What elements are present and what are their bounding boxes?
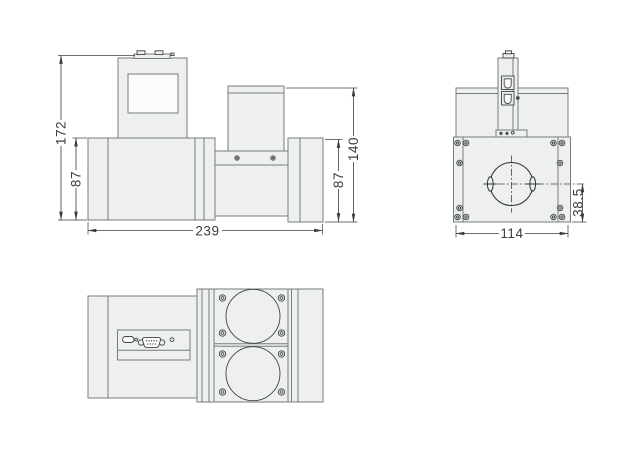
- screw-icon: [463, 140, 469, 146]
- dim-text-total-width: 239: [195, 224, 219, 239]
- screw-icon: [551, 140, 557, 146]
- screw-icon: [463, 214, 469, 220]
- dim-text-right-total-height: 140: [346, 137, 361, 161]
- dim-text-total-height: 172: [54, 121, 69, 145]
- screw-icon: [219, 351, 225, 357]
- front-lower-body: [215, 165, 288, 216]
- screw-icon: [551, 214, 557, 220]
- front-display-window: [128, 74, 178, 113]
- front-right-column-cap: [228, 86, 284, 93]
- oval-slot: [123, 337, 135, 343]
- screw-icon: [457, 160, 463, 166]
- screw-icon: [559, 140, 565, 146]
- dim-text-side-width: 114: [500, 226, 523, 241]
- screw-icon: [278, 330, 284, 336]
- side-view: [454, 51, 587, 222]
- dim-text-center-to-bottom: 38.5: [571, 188, 586, 217]
- screw-icon: [557, 160, 563, 166]
- port-plug-1: [504, 79, 511, 88]
- front-top-connector-2: [155, 51, 163, 55]
- screw-icon: [278, 295, 284, 301]
- dim-text-right-body-height: 87: [331, 172, 346, 188]
- dsub-connector-shell: [142, 338, 160, 348]
- screw-icon: [559, 214, 565, 220]
- front-top-connector-small: [171, 53, 174, 56]
- front-top-connector-1: [137, 51, 145, 55]
- three-view-drawing: 172 87 239 87 140 114 38.5: [0, 0, 617, 455]
- screw-icon: [278, 351, 284, 357]
- screw-icon: [219, 295, 225, 301]
- screw-icon: [271, 156, 275, 160]
- front-view: [88, 51, 323, 222]
- port-plug-2: [504, 94, 511, 103]
- side-tab-top-connector-bump: [506, 51, 512, 54]
- front-right-flange: [288, 138, 323, 222]
- side-indicator-dot: [516, 96, 520, 100]
- front-left-barrel: [88, 138, 215, 220]
- led-dot: [505, 132, 508, 135]
- bottom-wheel-housing: [197, 289, 323, 402]
- front-bracket: [215, 151, 288, 165]
- dim-text-left-body-height: 87: [69, 171, 84, 187]
- bottom-view: [88, 289, 323, 402]
- screw-icon: [557, 205, 563, 211]
- front-right-column: [228, 93, 284, 151]
- screw-icon: [455, 214, 461, 220]
- technical-drawing-canvas: 172 87 239 87 140 114 38.5: [0, 0, 617, 455]
- screw-icon: [278, 389, 284, 395]
- screw-icon: [457, 205, 463, 211]
- led-dot: [499, 132, 502, 135]
- screw-icon: [219, 330, 225, 336]
- screw-icon: [235, 156, 239, 160]
- screw-icon: [455, 140, 461, 146]
- screw-icon: [219, 389, 225, 395]
